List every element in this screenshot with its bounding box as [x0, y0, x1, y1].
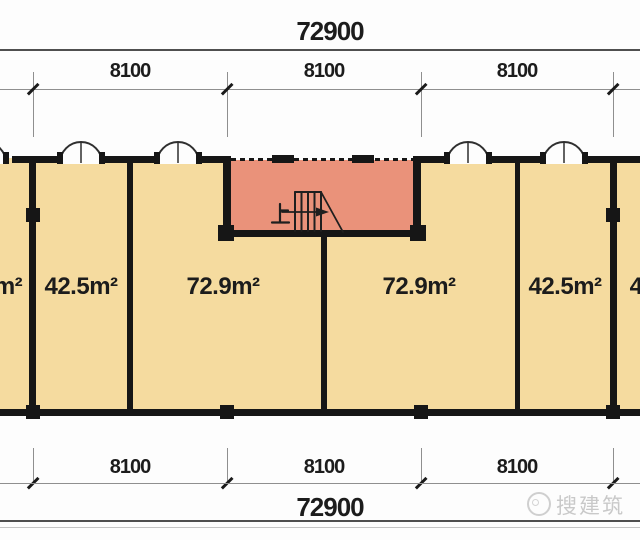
double-door — [57, 138, 105, 164]
exterior-top-wall — [584, 156, 640, 163]
door-swing-icon — [444, 138, 492, 164]
exterior-bottom-wall — [0, 409, 640, 416]
bottom-border-line — [0, 527, 640, 528]
exterior-top-wall — [488, 156, 545, 163]
stairwell-corner-column — [410, 225, 426, 241]
exterior-top-wall — [101, 156, 158, 163]
grid-extension-line — [33, 72, 34, 137]
room-divider-wall — [127, 163, 133, 411]
exterior-top-wall — [12, 156, 61, 163]
wall-column — [606, 208, 620, 222]
up-character-strokes — [272, 204, 289, 223]
room-divider-wall — [515, 163, 521, 411]
room-area-label-2: 72.9m² — [186, 273, 259, 301]
watermark-logo-icon — [527, 492, 551, 516]
center-divider-wall — [321, 235, 327, 411]
dim-total-bottom: 72900 — [296, 492, 363, 523]
room-area-label-partial-right: 4 — [630, 273, 640, 301]
dim-line-total-bottom — [0, 520, 640, 522]
room-divider-wall — [610, 163, 617, 411]
stairwell-corner-column — [218, 225, 234, 241]
dim-span-bottom-2: 8100 — [304, 456, 345, 479]
wall-column — [26, 208, 40, 222]
door-swing-icon — [0, 138, 9, 164]
watermark-text: 搜建筑 — [556, 490, 625, 520]
grid-column — [220, 405, 234, 419]
grid-extension-line — [421, 72, 422, 137]
door-swing-icon — [154, 138, 202, 164]
grid-column — [414, 405, 428, 419]
double-door — [540, 138, 588, 164]
stairwell-wall-pier — [352, 155, 374, 163]
stairwell-wall-pier — [272, 155, 294, 163]
grid-column — [606, 405, 620, 419]
dim-line-spans-bottom — [0, 483, 640, 484]
room-area-label-4: 42.5m² — [528, 273, 601, 301]
room-area-label-1: 42.5m² — [44, 273, 117, 301]
grid-extension-line — [33, 448, 34, 483]
grid-extension-line — [421, 448, 422, 483]
stairs-up-icon — [270, 188, 350, 236]
grid-extension-line — [613, 72, 614, 137]
double-door — [0, 138, 9, 164]
floor-plan-drawing: 72900 8100 8100 8100 m² 42.5m² 72.9m² 72… — [0, 0, 640, 540]
door-swing-icon — [540, 138, 588, 164]
room-area-label-partial-left: m² — [0, 273, 22, 301]
grid-extension-line — [227, 448, 228, 483]
room-divider-wall — [29, 163, 36, 411]
double-door — [154, 138, 202, 164]
double-door — [444, 138, 492, 164]
up-arrow-head — [316, 208, 329, 217]
door-swing-icon — [57, 138, 105, 164]
dim-span-bottom-1: 8100 — [110, 456, 151, 479]
grid-extension-line — [227, 72, 228, 137]
dim-span-bottom-3: 8100 — [497, 456, 538, 479]
room-area-label-3: 72.9m² — [382, 273, 455, 301]
grid-extension-line — [613, 448, 614, 483]
grid-column — [26, 405, 40, 419]
